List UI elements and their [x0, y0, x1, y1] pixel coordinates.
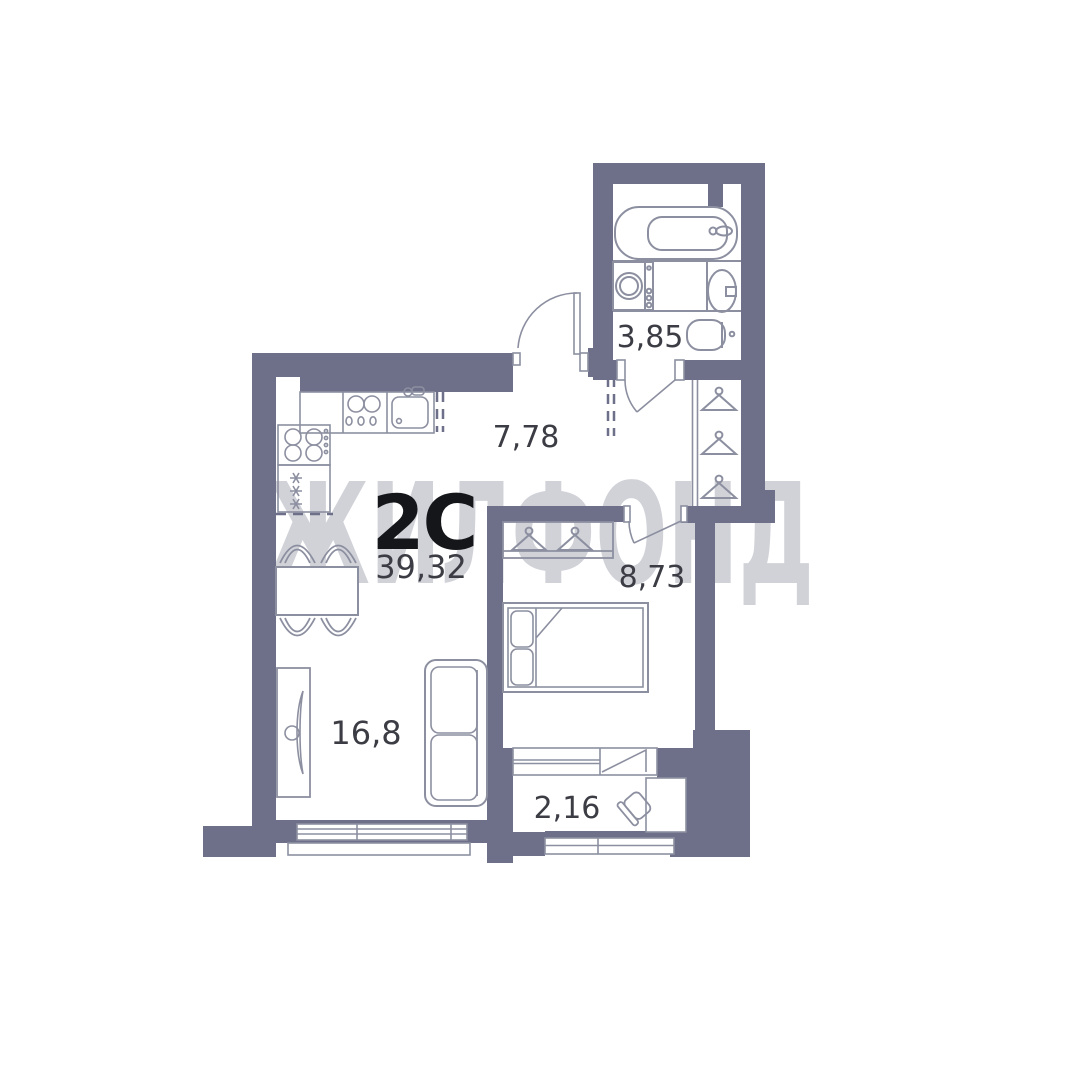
wall-segment — [741, 163, 765, 523]
bedroom-window-balcony-door — [513, 748, 657, 775]
door-jamb — [513, 353, 520, 365]
door-jamb — [617, 360, 625, 380]
wall-segment — [593, 163, 613, 380]
room-label-bedroom: 8,73 — [619, 560, 686, 595]
wall-segment — [593, 163, 765, 184]
wall-segment — [745, 490, 775, 523]
wall-segment — [487, 748, 513, 863]
wall-segment — [693, 730, 750, 857]
door-jamb — [580, 353, 588, 371]
door-jamb — [675, 360, 684, 380]
door-jamb — [624, 506, 630, 522]
window-sill — [288, 843, 470, 855]
balcony-cabinet — [646, 778, 686, 832]
wall-segment — [684, 360, 765, 380]
entrance-door-leaf — [574, 293, 580, 354]
room-label-hallway: 7,78 — [493, 420, 560, 455]
room-label-bathroom: 3,85 — [617, 320, 684, 355]
vent-shaft — [708, 184, 723, 207]
wall-segment — [300, 377, 513, 392]
total-area-label: 39,32 — [375, 548, 467, 586]
dining-table — [276, 567, 358, 615]
wall-segment — [252, 353, 513, 377]
wall-segment — [695, 506, 715, 748]
room-label-balcony: 2,16 — [534, 791, 601, 826]
wall-segment — [203, 826, 276, 857]
living-room-window — [297, 824, 467, 840]
wall-segment — [513, 832, 545, 856]
wall-segment — [252, 353, 276, 843]
door-jamb — [681, 506, 687, 522]
floorplan-svg: ЖИЛФОНД — [0, 0, 1080, 1080]
wall-segment — [588, 348, 613, 377]
floorplan-canvas: ЖИЛФОНД — [0, 0, 1080, 1080]
room-label-living-kitchen: 16,8 — [330, 714, 401, 752]
wall-segment — [487, 506, 629, 522]
wall-segment — [487, 506, 503, 748]
